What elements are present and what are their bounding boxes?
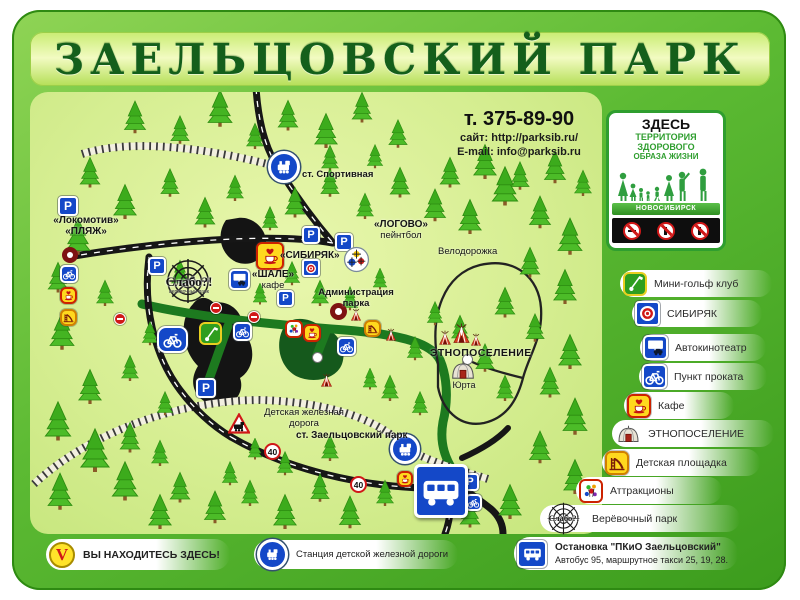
speed-limit-sign: 40 [350,476,367,493]
no-drugs-icon [691,222,709,240]
no-entry-icon [248,311,260,323]
rope-park-logo: Слабо?! [543,505,585,532]
sibiryak-target-icon [302,259,320,277]
phone-number: т. 375-89-90 [428,108,610,131]
label-children-railway-line2: дорога [258,418,350,429]
rope-park-logo-text: Слабо?! [154,274,224,290]
teepee-icon [385,328,397,341]
legend-item-ethno: ЭТНОПОСЕЛЕНИЕ [612,420,774,447]
parking-icon: P [302,226,320,244]
bus-stop-icon [517,540,547,568]
no-entry-icon [114,313,126,325]
city-band: НОВОСИБИРСК [612,203,720,215]
legend-label: Детская площадка [636,457,727,469]
bus-stop-subtitle: Автобус 95, маршрутное такси 25, 19, 28. [555,554,728,566]
label-sibiryak: «СИБИРЯК» [280,250,340,261]
playground-icon [605,451,629,475]
legend-item-bike-rental: Пункт проката [639,363,767,390]
label-logovo: «ЛОГОВО» [356,219,446,230]
road-terminus-marker [62,247,78,263]
teepee-icon [452,322,471,344]
park-title: ЗАЕЛЬЦОВСКИЙ ПАРК [30,32,770,86]
teepee-icon [438,330,452,345]
legend-item-playground: Детская площадка [602,449,760,476]
railway-tracks [34,146,488,484]
label-administration-line1: Администрация [318,287,394,298]
playground-icon [60,309,77,326]
label-children-railway: Детская железная дорога [258,407,350,429]
park-map-poster: ЗАЕЛЬЦОВСКИЙ ПАРК [0,0,800,600]
cafe-icon [60,287,77,304]
legend-label: Автокинотеатр [675,342,747,354]
bike-rental-icon [337,337,356,356]
children-railway-station-label: Станция детской железной дороги [296,549,448,560]
no-alcohol-icon [657,222,675,240]
path-end-marker [312,352,323,363]
family-silhouettes-graphic [614,163,718,203]
yurt-icon [450,358,476,380]
playground-icon [364,320,381,337]
legend-label: Кафе [658,400,684,412]
paintball-logovo-icon [343,246,370,273]
legend-label: Аттракционы [610,485,674,497]
bike-rental-icon [157,326,188,353]
label-station-sportivnaya: ст. Спортивная [302,169,373,180]
attractions-icon [579,479,603,503]
legend-item-minigolf: Мини-гольф клуб [620,270,772,297]
label-logovo-paintball: «ЛОГОВО» пейнтбол [356,219,446,241]
cafe-icon [303,324,321,342]
teepee-icon [470,333,482,346]
healthy-lifestyle-panel: ЗДЕСЬ ТЕРРИТОРИЯ ЗДОРОВОГО ОБРАЗА ЖИЗНИ … [606,110,726,251]
label-velodorozhka: Велодорожка [438,246,497,257]
legend-label: Мини-гольф клуб [654,278,738,290]
legend-item-attractions: Аттракционы [576,477,722,504]
legend-label: Верёвочный парк [592,513,677,525]
label-administration-line2: парка [318,298,394,309]
cafe-icon [397,471,413,487]
rope-park-logo-subtext: верёвочный парк [154,289,224,295]
website-url: сайт: http://parksib.ru/ [428,131,610,145]
bike-rental-icon [642,364,667,389]
bus-stop-icon [414,464,468,518]
email-address: E-mail: info@parksib.ru [428,145,610,159]
label-lokomotiv: «Локомотив» [34,215,138,226]
you-are-here-legend: V ВЫ НАХОДИТЕСЬ ЗДЕСЬ! [46,539,230,570]
station-sportivnaya-icon [268,151,300,183]
speed-limit-sign: 40 [264,443,281,460]
label-chalet-cafe: «ШАЛЕ» кафе [246,269,300,291]
label-lokomotiv-beach: «Локомотив» «ПЛЯЖ» [34,215,138,237]
you-are-here-icon: V [49,542,75,568]
bus-stop-legend: Остановка "ПКиО Заельцовский" Автобус 95… [514,537,738,570]
label-plyazh: «ПЛЯЖ» [34,226,138,237]
yurt-icon [615,421,641,446]
panel-line3: ЗДОРОВОГО [609,142,723,152]
label-chalet: «ШАЛЕ» [246,269,300,280]
label-children-railway-line1: Детская железная [258,407,350,418]
teepee-icon [320,373,333,387]
contact-block: т. 375-89-90 сайт: http://parksib.ru/ E-… [428,108,610,159]
bike-rental-icon [233,322,252,341]
label-ethno-village: ЭТНОПОСЕЛЕНИЕ [430,348,532,359]
title-banner: ЗАЕЛЬЦОВСКИЙ ПАРК [30,32,770,86]
parking-icon: P [196,378,216,398]
label-yurt: Юрта [444,380,484,391]
minigolf-icon [199,322,222,345]
panel-line2: ТЕРРИТОРИЯ [609,132,723,142]
children-railway-station-legend: Станция детской железной дороги [254,540,458,569]
bus-stop-title: Остановка "ПКиО Заельцовский" [555,542,728,554]
legend-item-cafe: Кафе [624,392,734,419]
label-administration: Администрация парка [318,287,394,309]
panel-line4: ОБРАЗА ЖИЗНИ [609,152,723,162]
attractions-icon [285,320,303,338]
road-centerlines [74,92,451,534]
minigolf-icon [623,272,647,296]
you-are-here-label: ВЫ НАХОДИТЕСЬ ЗДЕСЬ! [83,549,220,561]
teepee-icon [350,308,362,321]
rope-park-logo-text: Слабо?! [543,513,585,523]
train-station-icon [257,539,288,570]
rope-park-logo: Слабо?! верёвочный парк [154,258,224,310]
cafe-icon [627,394,651,418]
no-smoking-icon [623,222,641,240]
parking-icon: P [277,290,294,307]
sibiryak-target-icon [635,301,660,326]
legend-item-drive-in: Автокинотеатр [640,334,766,361]
label-paintball: пейнтбол [356,230,446,241]
legend-label: Пункт проката [674,371,743,383]
panel-line1: ЗДЕСЬ [609,116,723,132]
legend-item-sibiryak: СИБИРЯК [632,300,762,327]
legend-item-rope-park: Слабо?! Верёвочный парк [540,505,740,532]
label-station-zaeltsovsky: ст. Заельцовский парк [296,430,408,441]
label-chalet-cafe-word: кафе [246,280,300,291]
prohibition-strip [612,218,720,243]
drive-in-cinema-icon [643,335,668,360]
bike-rental-icon [60,265,78,283]
legend-label: ЭТНОПОСЕЛЕНИЕ [648,428,744,440]
railway-crossing-warning-icon [228,413,250,434]
parking-icon: P [58,196,78,216]
legend-label: СИБИРЯК [667,308,717,320]
